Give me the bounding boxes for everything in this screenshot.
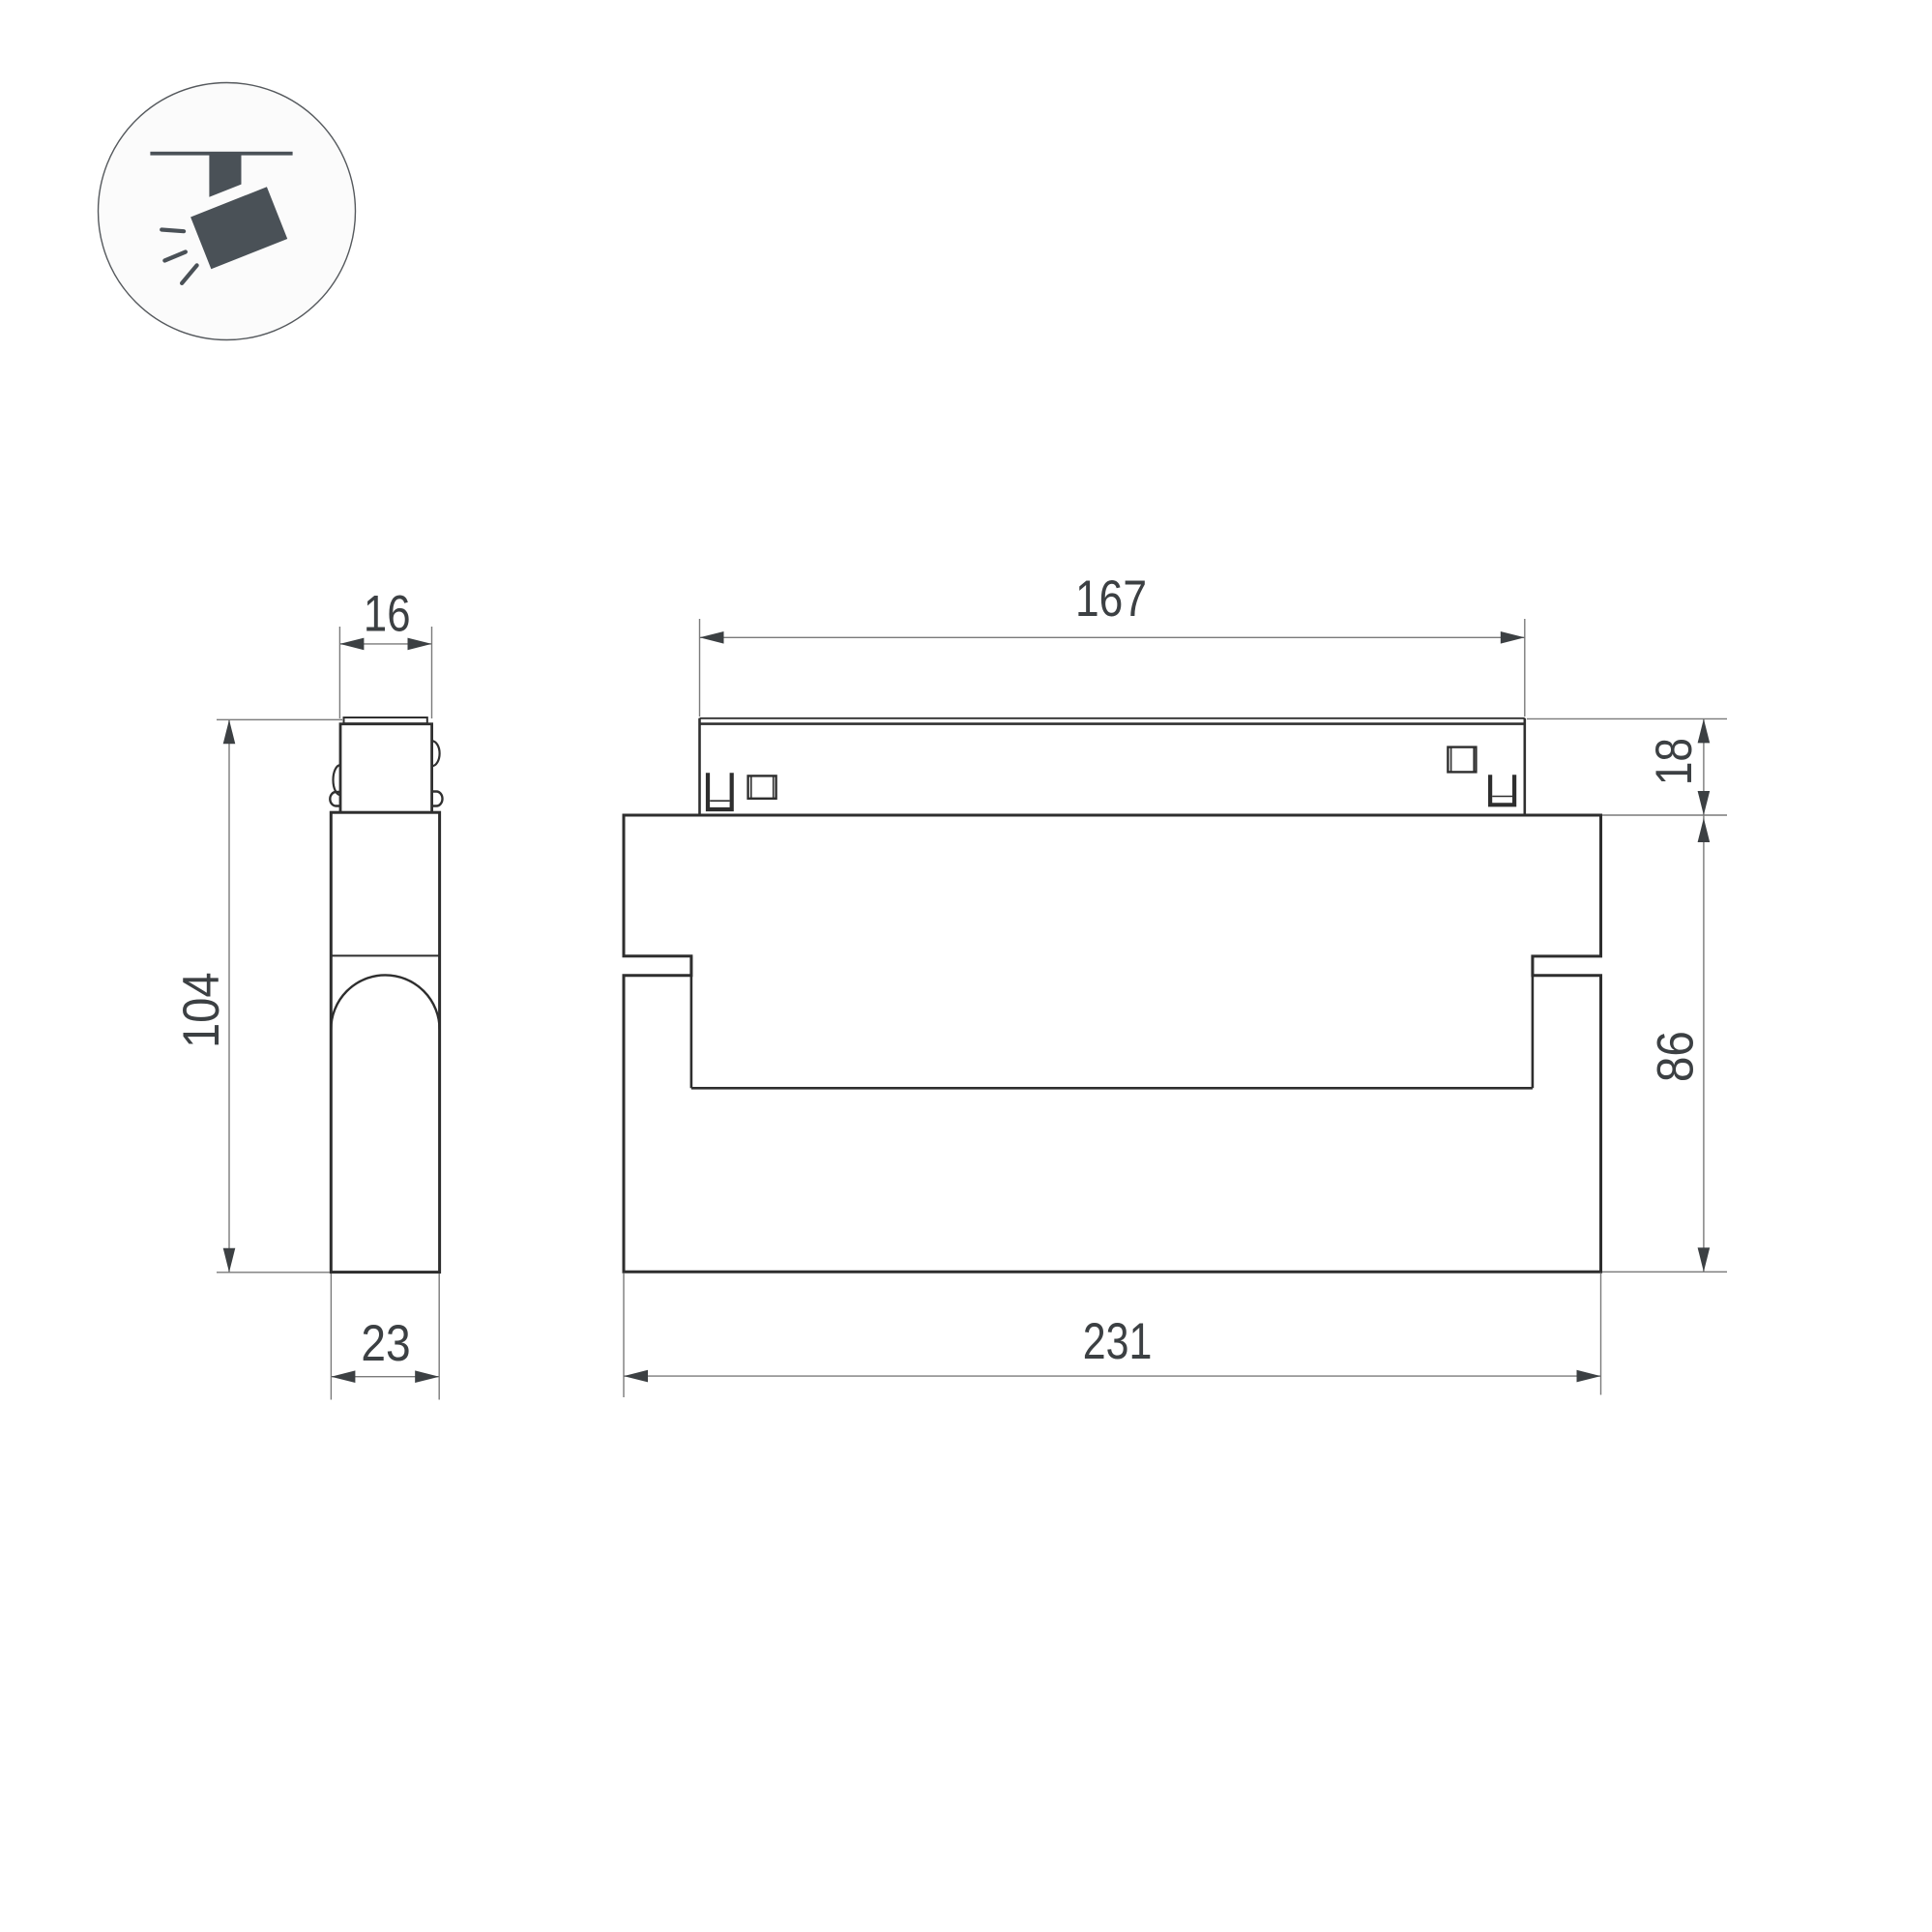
svg-text:231: 231 (1083, 1313, 1153, 1370)
svg-text:23: 23 (361, 1314, 410, 1372)
svg-text:16: 16 (364, 585, 411, 642)
svg-text:86: 86 (1646, 1031, 1704, 1082)
svg-text:104: 104 (173, 972, 230, 1048)
svg-text:167: 167 (1075, 571, 1147, 629)
svg-text:18: 18 (1646, 738, 1703, 785)
